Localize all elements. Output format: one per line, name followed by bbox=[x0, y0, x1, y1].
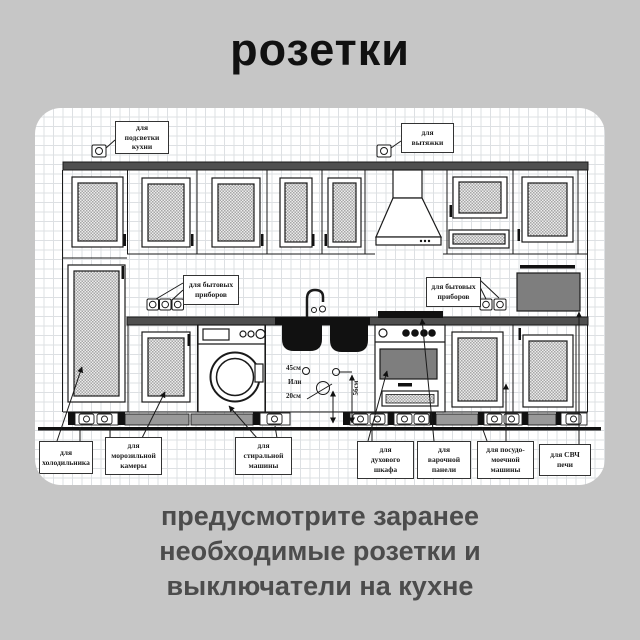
dim-56cm: 56см bbox=[352, 378, 360, 398]
callout-oven: для духового шкафа bbox=[357, 441, 414, 479]
dim-or: Или bbox=[288, 378, 301, 386]
callout-freezer: для морозильной камеры bbox=[105, 437, 162, 475]
faucet-icon bbox=[307, 290, 323, 317]
callout-hob: для варочной панели bbox=[417, 441, 471, 479]
countertop bbox=[127, 311, 588, 325]
page-title: розетки bbox=[0, 24, 640, 76]
callout-dishwasher: для посудо- моечной машины bbox=[477, 441, 534, 479]
caption-line-1: предусмотрите заранее bbox=[0, 499, 640, 534]
callout-backlight: для подсветки кухни bbox=[115, 121, 169, 154]
caption-line-3: выключатели на кухне bbox=[0, 569, 640, 604]
kitchen-elevation-drawing bbox=[35, 108, 605, 485]
microwave bbox=[517, 265, 580, 311]
callout-microwave: для СВЧ печи bbox=[539, 444, 591, 476]
callout-hood: для вытяжки bbox=[401, 123, 454, 153]
kitchen-diagram-panel: для подсветки кухни для вытяжки для быто… bbox=[35, 108, 605, 485]
plinth-sockets bbox=[68, 412, 587, 425]
callout-fridge: для холодильника bbox=[39, 441, 93, 474]
callout-appliances-right: для бытовых приборов bbox=[426, 277, 481, 307]
floor-line bbox=[38, 427, 601, 431]
washing-machine bbox=[198, 325, 265, 412]
caption-line-2: необходимые розетки и bbox=[0, 534, 640, 569]
range-hood bbox=[376, 170, 441, 245]
cabinet-structure bbox=[63, 162, 589, 412]
caption: предусмотрите заранее необходимые розетк… bbox=[0, 499, 640, 604]
callout-washer: для стиральной машины bbox=[235, 437, 292, 475]
callout-appliances-left: для бытовых приборов bbox=[183, 275, 239, 305]
dim-45cm: 45см bbox=[286, 364, 301, 372]
dim-20cm: 20см bbox=[286, 392, 301, 400]
stove bbox=[375, 325, 445, 412]
